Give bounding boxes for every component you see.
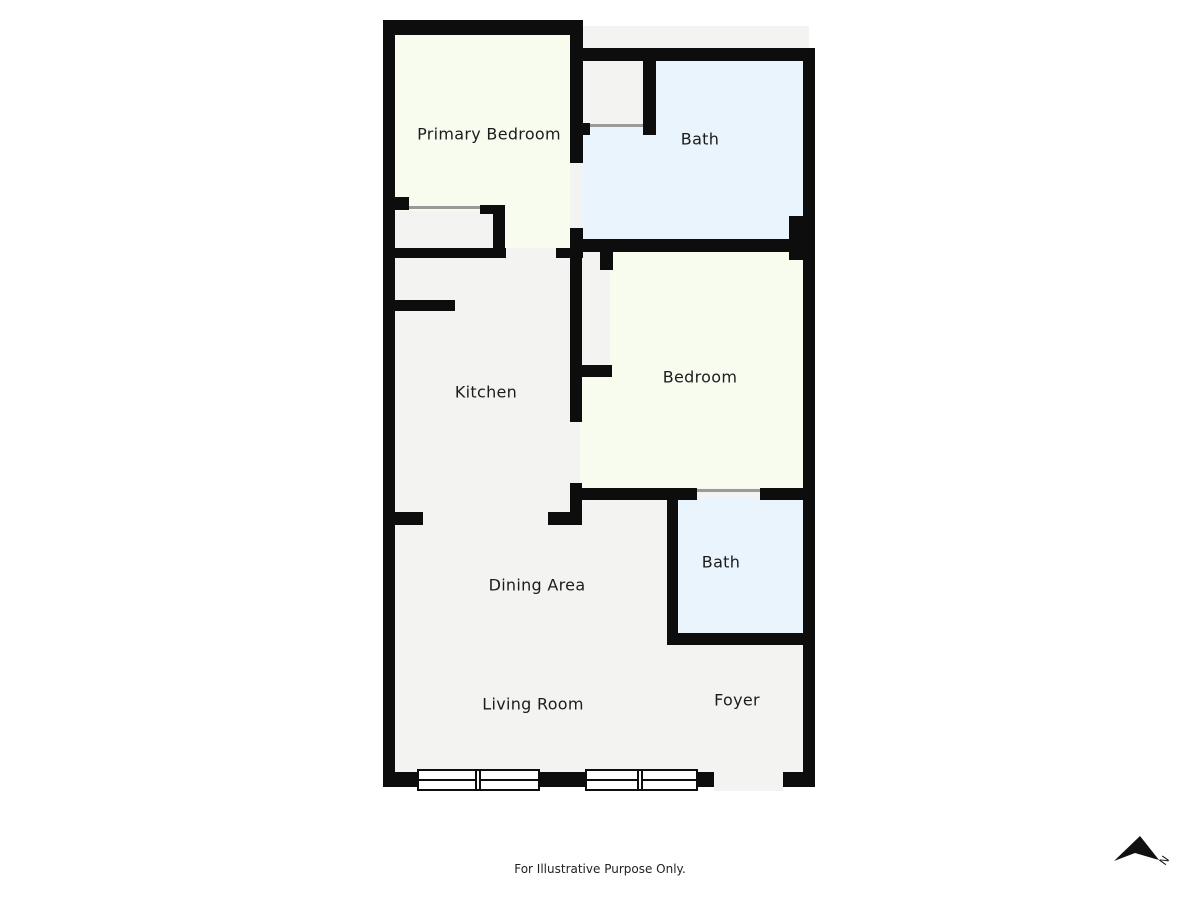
- wall-segment: [667, 493, 678, 645]
- wall-segment: [760, 488, 815, 500]
- wall-segment: [698, 772, 714, 787]
- wall-segment: [540, 772, 585, 787]
- room-label-bedroom: Bedroom: [663, 368, 737, 387]
- wall-segment: [783, 772, 815, 787]
- room-label-dining-area: Dining Area: [489, 576, 586, 595]
- disclaimer-text: For Illustrative Purpose Only.: [514, 862, 686, 876]
- wall-segment: [383, 20, 395, 787]
- wall-segment: [383, 772, 417, 787]
- wall-segment: [667, 633, 815, 645]
- wall-segment: [643, 48, 656, 135]
- wall-segment: [570, 123, 590, 135]
- wall-segment: [803, 48, 815, 787]
- window-symbol: [417, 769, 540, 791]
- room-label-primary-bedroom: Primary Bedroom: [417, 125, 561, 144]
- wall-segment: [480, 205, 505, 214]
- room-label-foyer: Foyer: [714, 691, 760, 710]
- wall-segment: [570, 33, 583, 163]
- wall-segment: [582, 239, 815, 252]
- room-label-bath-lower: Bath: [702, 553, 740, 572]
- wall-segment: [389, 512, 423, 525]
- wall-segment: [548, 512, 582, 525]
- floor-plan-canvas: Primary Bedroom Bath Kitchen Bedroom Bat…: [0, 0, 1200, 900]
- wall-segment: [576, 488, 697, 500]
- door-line: [590, 124, 643, 127]
- north-label: N: [1157, 854, 1172, 868]
- wall-segment: [383, 20, 583, 35]
- window-symbol: [585, 769, 698, 791]
- wall-segment: [600, 250, 613, 270]
- window-divider: [637, 771, 643, 789]
- wall-segment: [395, 197, 409, 210]
- room-label-kitchen: Kitchen: [455, 383, 517, 402]
- wall-segment: [389, 248, 506, 258]
- wall-segment: [389, 300, 455, 311]
- north-arrow-icon: N: [1108, 828, 1180, 876]
- room-bath-lower: [678, 498, 803, 635]
- door-line: [697, 489, 760, 492]
- wall-segment: [570, 228, 582, 422]
- room-label-living-room: Living Room: [482, 695, 584, 714]
- closet-primary-bedroom: [395, 211, 493, 248]
- room-label-bath-top: Bath: [681, 130, 719, 149]
- wall-segment: [583, 48, 815, 61]
- window-divider: [475, 771, 481, 789]
- door-block: [789, 216, 808, 260]
- closet-bath-top: [582, 58, 643, 125]
- entry-opening: [714, 772, 783, 791]
- north-arrow-shape: [1114, 836, 1159, 861]
- door-line: [409, 206, 480, 209]
- wall-segment: [580, 365, 612, 377]
